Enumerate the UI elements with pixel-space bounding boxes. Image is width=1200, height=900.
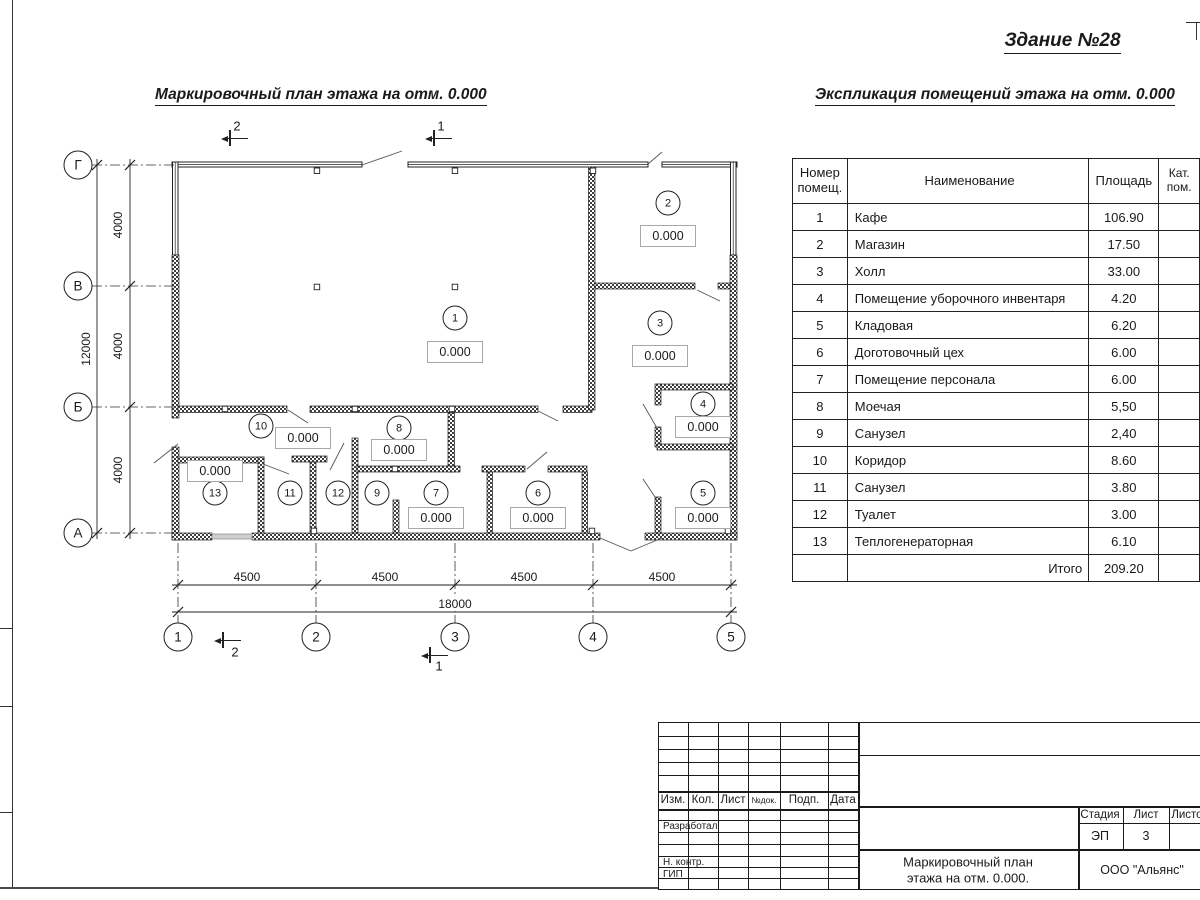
- elevation-mark-room-13: 0.000: [187, 460, 243, 482]
- explication-row: 8Моечая5,50: [793, 393, 1200, 420]
- elevation-mark-room-5: 0.000: [675, 507, 731, 529]
- total-value: 209.20: [1089, 555, 1159, 582]
- col-header-num: Номер помещ.: [793, 159, 848, 204]
- explication-row: 12Туалет3.00: [793, 501, 1200, 528]
- axis-circle-В: В: [64, 272, 93, 301]
- total-label: Итого: [847, 555, 1089, 582]
- room-number-8: 8: [387, 416, 412, 441]
- elevation-mark-room-3: 0.000: [632, 345, 688, 367]
- arrow-part: [222, 632, 224, 648]
- section-mark-label-2: 2: [233, 119, 240, 134]
- section-mark-arrow-1: [425, 134, 452, 144]
- axis-circle-4: 4: [579, 623, 608, 652]
- elevation-mark-room-1: 0.000: [427, 341, 483, 363]
- dim-label: 4000: [111, 210, 125, 241]
- explication-row: 3Холл33.00: [793, 258, 1200, 285]
- room-number-4: 4: [691, 392, 716, 417]
- explication-row: 13Теплогенераторная6.10: [793, 528, 1200, 555]
- room-number-2: 2: [656, 191, 681, 216]
- tb-kol: Кол.: [692, 794, 715, 806]
- corner-mark: [1196, 22, 1197, 40]
- drawing-sheet: Здание №28 Маркировочный план этажа на о…: [0, 0, 1200, 900]
- dim-label-total: 12000: [79, 330, 93, 367]
- arrow-part: [433, 130, 435, 146]
- dim-label: 4500: [232, 570, 263, 584]
- explication-row: 11Санузел3.80: [793, 474, 1200, 501]
- explication-table: Номер помещ. Наименование Площадь Кат. п…: [792, 158, 1200, 582]
- explication-row: 10Коридор8.60: [793, 447, 1200, 474]
- tb-doc-title-1: Маркировочный план: [903, 855, 1033, 870]
- room-number-9: 9: [365, 481, 390, 506]
- explication-body: 1Кафе106.90 2Магазин17.50 3Холл33.00 4По…: [793, 204, 1200, 555]
- axis-circle-Г: Г: [64, 151, 93, 180]
- tb-company: ООО "Альянс": [1100, 863, 1184, 877]
- dim-label: 4000: [111, 331, 125, 362]
- axis-circle-Б: Б: [64, 393, 93, 422]
- elevation-mark-room-10: 0.000: [275, 427, 331, 449]
- frame-tick: [0, 706, 12, 707]
- tb-doc-title-2: этажа на отм. 0.000.: [907, 871, 1029, 886]
- tb-podp: Подп.: [789, 794, 820, 806]
- axis-circle-3: 3: [441, 623, 470, 652]
- dim-label: 4000: [111, 455, 125, 486]
- dim-label: 4500: [509, 570, 540, 584]
- room-number-13: 13: [203, 481, 228, 506]
- room-number-1: 1: [443, 306, 468, 331]
- elevation-mark-room-2: 0.000: [640, 225, 696, 247]
- axis-circle-5: 5: [717, 623, 746, 652]
- tb-data: Дата: [830, 794, 855, 806]
- col-header-name: Наименование: [847, 159, 1089, 204]
- room-number-11: 11: [278, 481, 303, 506]
- axis-circle-2: 2: [302, 623, 331, 652]
- explication-row: 6Доготовочный цех6.00: [793, 339, 1200, 366]
- room-number-5: 5: [691, 481, 716, 506]
- tb-sheet-value: 3: [1143, 829, 1150, 843]
- explication-row: 4Помещение уборочного инвентаря4.20: [793, 285, 1200, 312]
- axis-circle-А: А: [64, 519, 93, 548]
- tb-role-ncontr: Н. контр.: [663, 857, 704, 868]
- tb-stage-value: ЭП: [1091, 829, 1109, 843]
- arrow-part: [229, 130, 231, 146]
- title-block: Изм. Кол. Лист №док. Подп. Дата Разработ…: [658, 722, 1200, 890]
- room-number-10: 10: [249, 414, 274, 439]
- elevation-mark-room-4: 0.000: [675, 416, 731, 438]
- arrow-head-icon: [425, 136, 432, 142]
- tb-role-developer: Разработал: [663, 821, 717, 832]
- arrow-head-icon: [214, 638, 221, 644]
- corner-mark: [1186, 22, 1200, 23]
- section-mark-label-2: 2: [231, 645, 238, 660]
- col-header-area: Площадь: [1089, 159, 1159, 204]
- explication-row: 9Санузел2,40: [793, 420, 1200, 447]
- elevation-mark-room-7: 0.000: [408, 507, 464, 529]
- col-header-cat: Кат. пом.: [1159, 159, 1200, 204]
- elevation-mark-room-8: 0.000: [371, 439, 427, 461]
- axis-circle-1: 1: [164, 623, 193, 652]
- tb-sheet-label: Лист: [1134, 809, 1159, 821]
- room-number-7: 7: [424, 481, 449, 506]
- arrow-part: [429, 647, 431, 663]
- arrow-head-icon: [421, 653, 428, 659]
- explication-row: 5Кладовая6.20: [793, 312, 1200, 339]
- section-mark-arrow-2: [214, 636, 241, 646]
- arrow-head-icon: [221, 136, 228, 142]
- plan-overlay: ГВБА123454000400040001200045004500450045…: [0, 0, 790, 690]
- section-mark-arrow-2: [221, 134, 248, 144]
- tb-stage-label: Стадия: [1080, 809, 1119, 821]
- explication-row: 1Кафе106.90: [793, 204, 1200, 231]
- dim-label: 4500: [647, 570, 678, 584]
- tb-list: Лист: [721, 794, 746, 806]
- room-number-12: 12: [326, 481, 351, 506]
- room-number-3: 3: [648, 311, 673, 336]
- explication-title: Экспликация помещений этажа на отм. 0.00…: [815, 86, 1160, 104]
- explication-row: 7Помещение персонала6.00: [793, 366, 1200, 393]
- section-mark-label-1: 1: [437, 119, 444, 134]
- explication-row: 2Магазин17.50: [793, 231, 1200, 258]
- building-title: Здание №28: [955, 30, 1170, 52]
- room-number-6: 6: [526, 481, 551, 506]
- dim-label-total: 18000: [436, 597, 473, 611]
- tb-izm: Изм.: [661, 794, 686, 806]
- section-mark-arrow-1: [421, 651, 448, 661]
- elevation-mark-room-6: 0.000: [510, 507, 566, 529]
- frame-tick: [0, 812, 12, 813]
- tb-sheets-label: Листов: [1171, 809, 1200, 821]
- dim-label: 4500: [370, 570, 401, 584]
- tb-role-gip: ГИП: [663, 869, 683, 880]
- tb-ndok: №док.: [752, 795, 777, 805]
- total-row: Итого 209.20: [793, 555, 1200, 582]
